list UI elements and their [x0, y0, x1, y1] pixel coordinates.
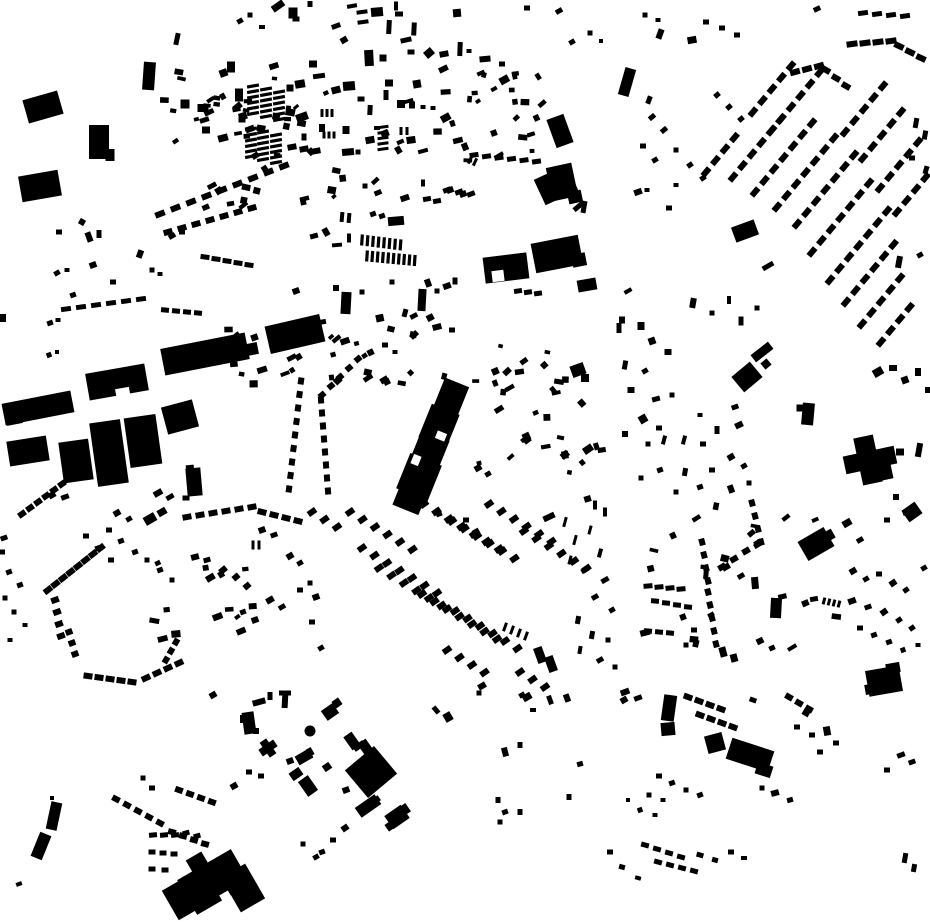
row-building [676, 586, 685, 592]
building [287, 85, 294, 92]
row-building [323, 132, 326, 139]
scatter-building [441, 89, 451, 95]
row-building [149, 832, 157, 838]
building [727, 296, 731, 304]
building [817, 750, 823, 755]
building [710, 311, 715, 316]
row-building [149, 867, 156, 872]
building [340, 292, 351, 314]
building [646, 442, 651, 447]
building [656, 426, 662, 431]
row-building [643, 583, 652, 589]
row-building [323, 461, 329, 468]
building [309, 620, 315, 625]
building [467, 49, 472, 53]
scatter-building [203, 103, 211, 108]
round-building [305, 726, 316, 737]
building [97, 230, 102, 238]
row-building [83, 672, 93, 679]
building [302, 134, 307, 141]
building [674, 183, 679, 187]
building [388, 216, 405, 226]
row-building [654, 584, 663, 590]
building [106, 528, 112, 533]
scatter-building [512, 99, 518, 105]
building [496, 797, 501, 803]
row-building [651, 598, 659, 604]
building [498, 820, 503, 825]
building [382, 343, 388, 348]
scatter-building [375, 314, 384, 323]
building [571, 252, 587, 267]
building [715, 426, 720, 434]
scatter-building [543, 414, 550, 421]
row-building [149, 850, 156, 855]
row-building [320, 422, 326, 429]
building [259, 25, 265, 29]
building [363, 184, 368, 189]
building [158, 272, 163, 276]
scatter-building [230, 362, 238, 368]
building [412, 79, 421, 88]
row-building [319, 409, 325, 416]
scatter-building [509, 88, 515, 93]
building [186, 465, 195, 474]
building [457, 42, 462, 56]
building [0, 550, 5, 555]
building [588, 31, 593, 36]
scatter-building [224, 327, 233, 333]
building [227, 62, 235, 73]
building [656, 774, 662, 779]
building [864, 683, 878, 695]
scatter-building [274, 153, 280, 157]
building [65, 268, 70, 272]
building [421, 180, 425, 187]
row-building [194, 310, 202, 316]
building [666, 206, 672, 211]
scatter-building [433, 128, 442, 134]
scatter-building [339, 175, 346, 183]
building [308, 1, 313, 7]
building [875, 463, 894, 482]
building [330, 838, 336, 843]
row-building [293, 418, 300, 426]
scatter-building [225, 607, 234, 612]
scatter-building [518, 134, 528, 141]
building [56, 230, 62, 235]
scatter-building [561, 451, 569, 459]
building [319, 124, 325, 132]
building [581, 374, 589, 382]
building [674, 490, 679, 495]
building [246, 770, 252, 775]
scatter-building [249, 380, 257, 387]
building [449, 328, 455, 333]
building [876, 572, 882, 577]
row-building [328, 132, 331, 139]
building [380, 55, 387, 62]
building [453, 278, 458, 285]
scatter-building [272, 76, 277, 80]
row-building [286, 485, 293, 493]
building [619, 317, 625, 324]
building [408, 50, 415, 55]
building [301, 842, 306, 847]
building [108, 558, 114, 563]
row-building [183, 309, 191, 315]
building [896, 449, 904, 456]
scatter-building [327, 186, 337, 195]
building [183, 496, 190, 501]
row-building [162, 868, 169, 873]
building [386, 20, 392, 34]
building [309, 61, 317, 68]
building-circles-layer [305, 726, 316, 737]
building [395, 12, 403, 17]
building [385, 80, 393, 87]
scatter-building [160, 97, 169, 103]
building [258, 774, 264, 779]
building [747, 481, 752, 486]
building [638, 322, 645, 330]
building [915, 368, 921, 376]
row-building [326, 109, 329, 117]
row-building [333, 132, 336, 139]
building [925, 387, 930, 393]
building [857, 626, 863, 631]
row-building [662, 600, 670, 606]
scatter-building [202, 564, 209, 571]
building [106, 149, 115, 161]
building [499, 62, 505, 67]
scatter-building [520, 99, 529, 106]
building [640, 144, 646, 149]
building [709, 468, 715, 473]
building [308, 581, 313, 586]
row-building [673, 602, 681, 608]
building [297, 588, 303, 593]
building [703, 20, 709, 25]
building [797, 405, 804, 412]
scatter-building [329, 374, 335, 380]
row-building [172, 308, 180, 314]
row-building [160, 851, 167, 856]
row-building [296, 391, 303, 399]
row-building [94, 674, 104, 681]
row-building [105, 675, 115, 682]
building [626, 798, 630, 802]
building [58, 439, 93, 484]
building [150, 268, 155, 273]
building [293, 17, 300, 22]
building [755, 306, 760, 311]
building [617, 323, 622, 333]
building [397, 100, 405, 108]
building [406, 136, 416, 144]
building [390, 280, 395, 285]
building [453, 9, 462, 18]
building [333, 285, 339, 291]
row-building [116, 677, 126, 684]
building [343, 81, 356, 91]
scatter-building [213, 102, 220, 107]
building [252, 541, 255, 550]
building [607, 850, 613, 855]
building [524, 6, 530, 11]
row-building [171, 832, 179, 838]
building [421, 105, 426, 109]
building [660, 722, 675, 736]
building [700, 442, 706, 447]
building [55, 350, 59, 354]
building [656, 18, 661, 22]
scatter-building [562, 376, 569, 383]
building [645, 188, 650, 192]
building [893, 494, 899, 500]
scatter-building [284, 117, 291, 121]
building [606, 638, 611, 643]
building [248, 13, 253, 18]
building [384, 90, 389, 100]
building [884, 518, 890, 523]
building [279, 691, 291, 696]
building [833, 741, 839, 746]
building [342, 148, 355, 156]
building [794, 725, 800, 730]
scatter-building [240, 197, 248, 205]
building [809, 733, 815, 738]
scatter-building [530, 149, 535, 153]
scatter-building [242, 567, 249, 572]
building [411, 22, 417, 35]
building [599, 39, 603, 43]
building [665, 349, 672, 355]
row-building [160, 832, 168, 838]
building [530, 708, 536, 712]
building [698, 413, 703, 417]
building [258, 541, 261, 550]
building [0, 314, 6, 322]
building [268, 692, 273, 700]
building [760, 786, 765, 791]
row-building [295, 404, 302, 412]
courtyard-cut [115, 387, 131, 401]
building [12, 610, 17, 615]
building [477, 691, 482, 696]
building [479, 56, 490, 63]
building-footprint-map: Black-and-white building footprint map (… [0, 0, 930, 924]
row-building [127, 678, 137, 685]
building [406, 127, 409, 135]
scatter-building [163, 607, 170, 613]
row-building [684, 604, 692, 610]
building [916, 643, 921, 647]
building [253, 728, 259, 734]
building [622, 431, 628, 437]
building [653, 813, 658, 817]
building [170, 578, 175, 583]
building [518, 742, 523, 748]
building [367, 105, 373, 115]
row-building [331, 109, 334, 117]
row-building [161, 307, 169, 313]
building [751, 577, 759, 590]
building [674, 148, 679, 153]
building [294, 79, 305, 89]
row-building [290, 445, 297, 453]
building [343, 126, 350, 134]
scatter-building [272, 112, 281, 120]
building [518, 809, 523, 815]
building [463, 518, 469, 523]
scatter-building [472, 379, 479, 383]
row-building [655, 629, 663, 635]
building [884, 768, 890, 773]
building [240, 715, 246, 723]
building [647, 793, 652, 798]
building [181, 100, 190, 109]
scatter-building [463, 158, 472, 162]
courtyard-cut [491, 270, 504, 282]
map-canvas: Black-and-white building footprint map (… [0, 0, 930, 924]
building [23, 623, 28, 627]
building [371, 7, 384, 17]
row-building [321, 109, 324, 117]
scatter-building [700, 564, 706, 569]
row-building [665, 585, 674, 591]
building [567, 794, 572, 800]
row-building [292, 431, 299, 439]
building [734, 33, 740, 38]
scatter-building [249, 603, 257, 609]
building [400, 127, 403, 135]
scatter-building [500, 389, 506, 396]
building [360, 290, 365, 295]
building [661, 798, 666, 802]
building [142, 62, 156, 91]
scatter-building [244, 99, 253, 104]
building [358, 97, 365, 102]
building [741, 856, 747, 860]
row-building [324, 474, 330, 481]
row-building [298, 377, 305, 385]
row-building [322, 448, 328, 455]
row-building [289, 458, 296, 466]
building [728, 850, 734, 855]
row-building [171, 852, 178, 857]
scatter-building [567, 470, 572, 475]
building [770, 598, 782, 619]
building [684, 788, 689, 793]
building [145, 558, 150, 563]
building [639, 476, 644, 481]
scatter-building [831, 613, 841, 620]
building [670, 393, 675, 398]
building [83, 534, 89, 539]
building [235, 89, 243, 102]
building [3, 596, 8, 601]
row-building [666, 630, 674, 636]
building [364, 50, 374, 66]
building [149, 786, 155, 791]
building [628, 387, 635, 393]
row-building [321, 435, 327, 442]
building [347, 234, 351, 243]
row-building [325, 487, 331, 494]
building [417, 289, 426, 311]
scatter-building [243, 134, 250, 139]
building [356, 150, 361, 155]
scatter-building [283, 123, 291, 131]
building [56, 318, 61, 322]
building [739, 317, 744, 326]
building [393, 350, 398, 354]
building [50, 796, 54, 800]
building [483, 252, 530, 283]
scatter-building [171, 630, 181, 638]
building [394, 2, 398, 11]
building [8, 638, 13, 642]
building [431, 106, 436, 110]
building [141, 776, 146, 781]
scatter-building [467, 96, 472, 103]
building [110, 280, 116, 285]
building [202, 127, 210, 134]
building [613, 665, 618, 670]
row-building [287, 472, 294, 480]
building [719, 26, 725, 31]
building [603, 508, 607, 517]
building [684, 643, 689, 648]
scatter-building [472, 91, 478, 96]
building [643, 13, 648, 18]
building [593, 501, 597, 510]
building [435, 289, 440, 294]
building [691, 628, 697, 633]
building [889, 365, 897, 371]
